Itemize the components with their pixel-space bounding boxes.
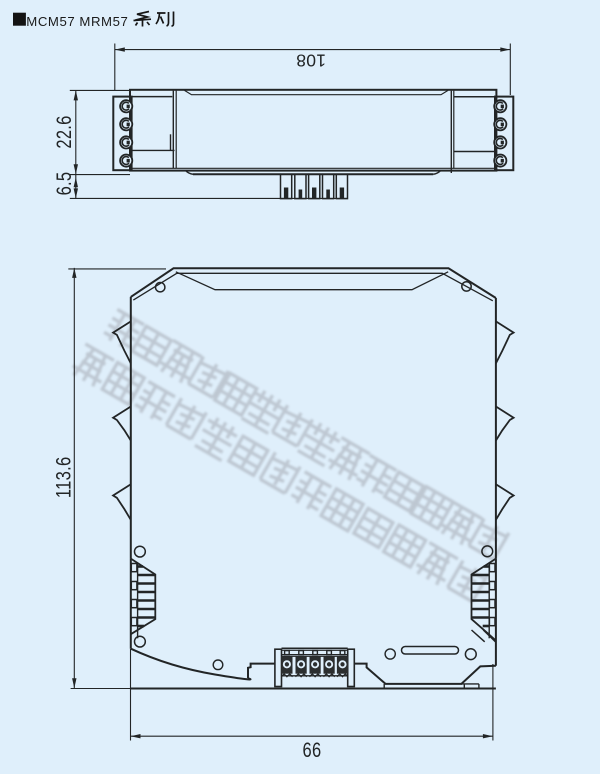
svg-text:113.6: 113.6 [52, 457, 75, 499]
svg-text:22.6: 22.6 [53, 115, 76, 148]
svg-text:66: 66 [303, 739, 322, 762]
svg-text:6.5: 6.5 [53, 172, 76, 196]
svg-text:MCM57 MRM57: MCM57 MRM57 [26, 14, 128, 29]
svg-text:108: 108 [296, 50, 326, 70]
